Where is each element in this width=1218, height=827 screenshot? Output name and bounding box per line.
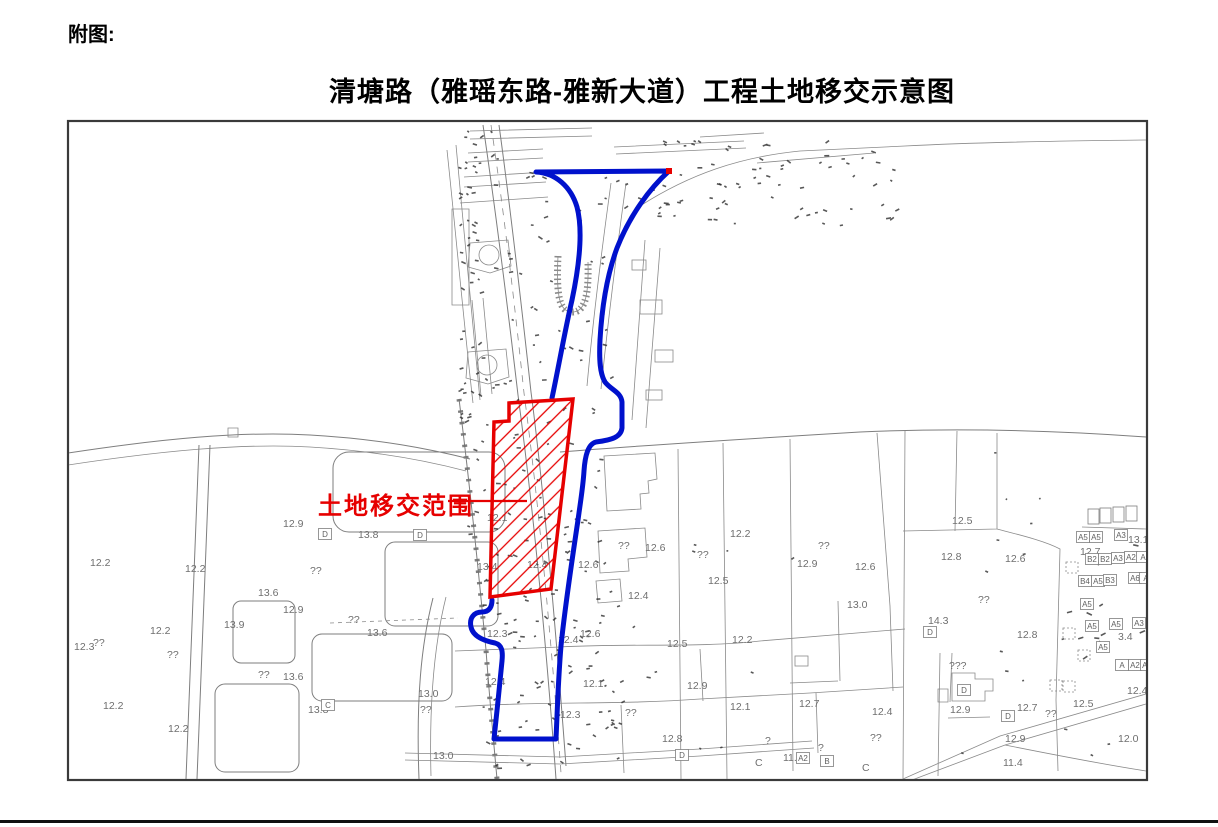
map-mark	[791, 557, 795, 560]
map-mark	[1067, 611, 1073, 614]
map-mark	[1107, 743, 1110, 745]
map-mark	[511, 319, 514, 321]
map-mark	[536, 620, 539, 622]
map-mark	[525, 720, 528, 722]
map-mark	[825, 140, 829, 144]
map-mark	[657, 215, 661, 217]
map-mark	[479, 162, 482, 164]
map-mark	[558, 330, 561, 332]
elevation-label: 13.0	[847, 599, 868, 611]
elevation-label: 12.5	[952, 515, 973, 527]
elevation-label: 12.3	[74, 641, 95, 653]
map-mark	[555, 589, 558, 591]
map-mark	[462, 330, 465, 332]
map-mark	[590, 260, 593, 262]
map-mark	[459, 367, 463, 370]
map-mark	[466, 193, 469, 196]
map-mark	[476, 239, 480, 241]
map-mark	[734, 223, 736, 225]
building-box-dashed	[1063, 628, 1075, 639]
map-mark	[580, 359, 583, 361]
map-mark	[464, 167, 467, 169]
map-mark	[523, 595, 527, 598]
map-mark	[474, 156, 477, 158]
map-mark	[586, 723, 590, 725]
elevation-label: ??	[258, 669, 270, 681]
map-mark	[658, 206, 661, 209]
map-mark	[663, 140, 668, 143]
map-mark	[534, 308, 538, 311]
building-label: B4	[1080, 577, 1090, 586]
map-mark	[823, 209, 828, 212]
map-canvas: 12.913.812.212.213.612.9??13.9??12.212.3…	[0, 0, 1218, 827]
map-mark	[725, 148, 729, 151]
transfer-polygon	[490, 399, 573, 597]
map-mark	[531, 175, 535, 178]
building-label: D	[961, 686, 967, 695]
map-mark	[491, 154, 495, 158]
map-mark	[1061, 638, 1064, 640]
elevation-label: ??	[697, 549, 709, 561]
map-mark	[780, 168, 783, 170]
elevation-label: 12.8	[941, 551, 962, 563]
map-mark	[513, 646, 516, 648]
building-label: D	[1005, 712, 1011, 721]
building-box-dashed	[1066, 562, 1078, 573]
map-mark	[800, 187, 804, 189]
map-mark	[759, 167, 761, 169]
map-mark	[460, 338, 463, 340]
boundary-corner-mark	[666, 168, 672, 174]
map-mark	[591, 408, 595, 411]
elevation-label: 13.0	[418, 688, 439, 700]
map-mark	[601, 262, 604, 264]
map-mark	[596, 598, 600, 600]
map-mark	[850, 208, 853, 210]
map-mark	[513, 619, 516, 622]
map-mark	[464, 136, 467, 138]
map-mark	[806, 214, 810, 217]
elevation-label: ???	[949, 660, 967, 672]
map-mark	[467, 525, 470, 528]
building-box-empty	[1113, 507, 1124, 522]
elevation-label: 13.6	[283, 671, 304, 683]
map-mark	[467, 130, 470, 133]
map-mark	[646, 676, 650, 678]
map-mark	[545, 201, 548, 203]
map-mark	[464, 382, 467, 384]
map-mark	[517, 701, 520, 704]
elevation-label: 13.6	[258, 587, 279, 599]
map-mark	[726, 550, 728, 552]
elevation-label: 12.9	[283, 518, 304, 530]
map-mark	[474, 221, 478, 224]
map-mark	[542, 379, 547, 381]
map-mark	[494, 184, 498, 186]
map-mark	[478, 393, 482, 397]
map-mark	[594, 486, 598, 489]
map-mark	[608, 710, 611, 712]
map-mark	[568, 541, 573, 543]
map-mark	[520, 758, 524, 762]
map-mark	[469, 413, 472, 416]
map-mark	[736, 183, 740, 186]
map-mark	[589, 665, 593, 667]
map-mark	[1005, 498, 1007, 500]
elevation-label: ?	[818, 742, 824, 754]
building-label: A2	[1130, 661, 1140, 670]
map-mark	[573, 619, 578, 622]
map-mark	[551, 593, 555, 595]
map-mark	[617, 605, 620, 608]
building-label: A5	[1087, 622, 1097, 631]
elevation-label: 13.0	[433, 750, 454, 762]
elevation-label: 12.6	[855, 561, 876, 573]
map-mark	[621, 700, 625, 703]
page: 附图: 清塘路（雅瑶东路-雅新大道）工程土地移交示意图	[0, 0, 1218, 827]
map-mark	[588, 522, 592, 525]
map-mark	[542, 176, 547, 179]
map-mark	[579, 350, 584, 352]
elevation-label: 12.2	[732, 634, 753, 646]
map-mark	[478, 342, 482, 346]
map-mark	[599, 459, 603, 461]
map-mark	[592, 734, 596, 737]
map-mark	[1039, 498, 1041, 500]
map-mark	[468, 237, 471, 239]
map-mark	[520, 636, 525, 638]
map-mark	[662, 185, 666, 188]
elevation-label: ??	[348, 614, 360, 626]
building-label: A	[1119, 661, 1125, 670]
building-label: A6	[1130, 574, 1140, 583]
building-box-empty	[1100, 508, 1111, 523]
map-mark	[519, 726, 523, 728]
map-mark	[599, 622, 602, 624]
elevation-label: ?	[765, 735, 771, 747]
map-mark	[464, 420, 469, 424]
map-mark	[604, 177, 607, 180]
elevation-label: 12.9	[687, 680, 708, 692]
map-mark	[551, 681, 554, 683]
map-mark	[480, 291, 485, 294]
map-mark	[461, 261, 466, 264]
map-mark	[709, 197, 713, 199]
map-mark	[490, 131, 493, 134]
elevation-label: 13.8	[358, 529, 379, 541]
map-mark	[728, 145, 732, 148]
map-mark	[483, 706, 485, 708]
map-mark	[1078, 637, 1084, 640]
map-mark	[460, 252, 464, 254]
map-mark	[624, 205, 629, 209]
map-mark	[597, 470, 600, 472]
elevation-label: 3.4	[1118, 631, 1133, 643]
building-label: A5	[1082, 600, 1092, 609]
map-mark	[526, 176, 530, 179]
map-mark	[519, 272, 522, 275]
map-mark	[540, 680, 544, 684]
map-mark	[459, 223, 462, 226]
map-area: 12.913.812.212.213.612.9??13.9??12.212.3…	[0, 0, 1218, 827]
map-mark	[752, 168, 757, 170]
map-mark	[509, 271, 514, 273]
elevation-label: 12.9	[1005, 733, 1026, 745]
map-mark	[472, 165, 476, 168]
map-mark	[513, 631, 518, 633]
building-label: A5	[1111, 620, 1121, 629]
map-mark	[1030, 523, 1032, 525]
elevation-label: 12.5	[1073, 698, 1094, 710]
map-mark	[677, 140, 681, 143]
building-box-dashed	[1063, 681, 1075, 692]
map-mark	[486, 741, 491, 745]
map-mark	[471, 192, 475, 194]
map-mark	[840, 224, 843, 226]
map-mark	[841, 158, 845, 160]
elevation-label: ??	[310, 565, 322, 577]
map-mark	[605, 726, 609, 729]
map-mark	[612, 690, 615, 693]
map-mark	[1090, 754, 1093, 757]
map-mark	[470, 282, 474, 284]
map-mark	[564, 533, 567, 536]
map-mark	[520, 694, 524, 696]
map-mark	[611, 719, 615, 721]
map-mark	[1022, 680, 1024, 682]
map-mark	[483, 489, 486, 492]
elevation-label: 13.6	[367, 627, 388, 639]
map-mark	[611, 724, 614, 726]
map-mark	[692, 550, 696, 553]
map-mark	[539, 361, 542, 364]
building-label: A3	[1134, 619, 1144, 628]
map-mark	[496, 602, 499, 604]
map-mark	[852, 175, 855, 178]
map-mark	[476, 458, 479, 461]
map-mark	[497, 767, 502, 769]
elevation-label: 12.8	[1017, 629, 1038, 641]
map-mark	[475, 171, 478, 174]
map-mark	[492, 387, 495, 389]
map-mark	[697, 167, 702, 169]
map-mark	[658, 212, 661, 215]
map-mark	[766, 175, 771, 178]
map-mark	[550, 280, 553, 283]
building-box-empty	[1088, 509, 1099, 524]
elevation-label: 12.5	[708, 575, 729, 587]
map-mark	[570, 510, 573, 513]
map-mark	[581, 522, 584, 524]
building-label: A2	[1126, 553, 1136, 562]
map-mark	[503, 382, 507, 384]
building-box-empty	[1126, 506, 1137, 521]
building-label: A3	[1113, 554, 1123, 563]
map-mark	[530, 306, 533, 309]
map-mark	[725, 203, 729, 206]
building-label: A	[1140, 553, 1146, 562]
map-mark	[828, 166, 832, 169]
map-mark	[1000, 650, 1003, 652]
map-mark	[996, 539, 999, 541]
map-mark	[602, 256, 606, 259]
map-mark	[881, 204, 885, 207]
map-mark	[569, 442, 574, 445]
map-mark	[470, 272, 475, 275]
building-label: D	[417, 531, 423, 540]
map-mark	[632, 625, 635, 628]
map-mark	[526, 764, 531, 767]
building-label: D	[679, 751, 685, 760]
map-mark	[458, 389, 462, 392]
map-mark	[531, 224, 534, 226]
elevation-label: 12.9	[283, 604, 304, 616]
building-label: A5	[1078, 533, 1088, 542]
map-mark	[518, 640, 521, 642]
elevation-label: 12.2	[103, 700, 124, 712]
elevation-label: 12.3	[487, 628, 508, 640]
map-mark	[486, 424, 489, 426]
map-mark	[603, 344, 608, 347]
map-mark	[481, 440, 484, 443]
elevation-label: C	[862, 762, 870, 774]
elevation-label: 12.9	[950, 704, 971, 716]
map-mark	[536, 686, 541, 689]
map-mark	[800, 207, 804, 210]
map-mark	[458, 167, 462, 170]
map-mark	[895, 208, 900, 211]
elevation-label: ??	[618, 540, 630, 552]
elevation-label: ??	[818, 540, 830, 552]
map-mark	[475, 260, 479, 262]
map-mark	[1100, 632, 1105, 636]
elevation-label: C	[755, 757, 763, 769]
elevation-label: 13.1	[1128, 534, 1149, 546]
map-mark	[873, 183, 878, 187]
elevation-label: 12.1	[583, 678, 604, 690]
elevation-labels: 12.913.812.212.213.612.9??13.9??12.212.3…	[74, 512, 1149, 774]
building-label: B2	[1087, 555, 1097, 564]
elevation-label: 12.4	[872, 706, 893, 718]
map-mark	[474, 511, 479, 514]
map-mark	[604, 197, 607, 199]
map-mark	[534, 681, 538, 685]
map-mark	[861, 157, 864, 160]
map-mark	[753, 177, 756, 180]
map-mark	[679, 200, 683, 203]
map-mark	[603, 562, 606, 565]
elevation-label: ??	[167, 649, 179, 661]
map-mark	[529, 172, 534, 175]
map-mark	[485, 378, 488, 381]
map-mark	[509, 380, 512, 382]
elevation-label: 12.7	[1017, 702, 1038, 714]
elevation-label: ??	[93, 637, 105, 649]
map-mark	[592, 412, 595, 415]
building-label: A5	[1093, 577, 1103, 586]
map-mark	[498, 730, 501, 732]
elevation-label: ??	[625, 707, 637, 719]
map-mark	[759, 158, 763, 161]
map-mark	[750, 671, 753, 674]
map-mark	[609, 590, 612, 593]
map-mark	[473, 449, 477, 452]
map-mark	[467, 416, 472, 419]
map-mark	[1083, 656, 1088, 660]
map-mark	[1094, 637, 1099, 639]
elevation-label: ??	[1045, 708, 1057, 720]
map-mark	[720, 746, 723, 748]
elevation-label: 12.4	[1127, 685, 1148, 697]
map-mark	[583, 519, 587, 522]
elevation-label: 12.3	[560, 709, 581, 721]
map-mark	[544, 616, 548, 620]
map-mark	[617, 757, 620, 760]
map-mark	[525, 599, 529, 602]
footer-rule	[0, 820, 1218, 823]
elevation-label: 11.4	[1003, 757, 1023, 769]
building-label: A3	[1116, 531, 1126, 540]
map-mark	[819, 161, 822, 164]
map-mark	[598, 203, 603, 205]
building-label: A5	[1098, 643, 1108, 652]
map-mark	[496, 158, 498, 160]
map-mark	[477, 278, 480, 280]
base-linework	[68, 125, 1146, 780]
map-mark	[985, 570, 988, 573]
map-mark	[538, 236, 543, 240]
map-mark	[778, 184, 781, 186]
map-mark	[815, 212, 818, 214]
map-mark	[614, 726, 618, 729]
building-label: B2	[1100, 555, 1110, 564]
map-mark	[508, 632, 513, 636]
map-mark	[573, 627, 576, 629]
map-mark	[534, 635, 537, 637]
elevation-label: 12.2	[185, 563, 206, 575]
map-mark	[822, 222, 825, 224]
map-mark	[576, 748, 580, 750]
map-mark	[781, 164, 785, 167]
map-mark	[1064, 728, 1068, 730]
map-mark	[766, 144, 770, 146]
map-mark	[568, 670, 572, 674]
map-mark	[463, 392, 467, 394]
map-mark	[994, 452, 996, 454]
map-mark	[509, 258, 513, 260]
map-mark	[616, 180, 620, 183]
map-mark	[544, 216, 549, 219]
elevation-label: 12.6	[1005, 553, 1026, 565]
elevation-label: 12.2	[150, 625, 171, 637]
map-mark	[533, 344, 535, 346]
map-mark	[693, 140, 696, 142]
map-mark	[586, 320, 590, 322]
building-label: D	[927, 628, 933, 637]
elevation-label: 12.2	[90, 557, 111, 569]
map-mark	[473, 143, 478, 146]
building-label: B3	[1105, 576, 1115, 585]
elevation-label: 13.9	[224, 619, 245, 631]
elevation-label: 12.5	[667, 638, 688, 650]
map-mark	[892, 169, 896, 172]
map-mark	[738, 186, 741, 189]
map-mark	[495, 384, 500, 386]
map-mark	[708, 219, 712, 221]
map-mark	[673, 215, 676, 217]
elevation-label: 12.0	[1118, 733, 1139, 745]
map-mark	[724, 185, 727, 188]
